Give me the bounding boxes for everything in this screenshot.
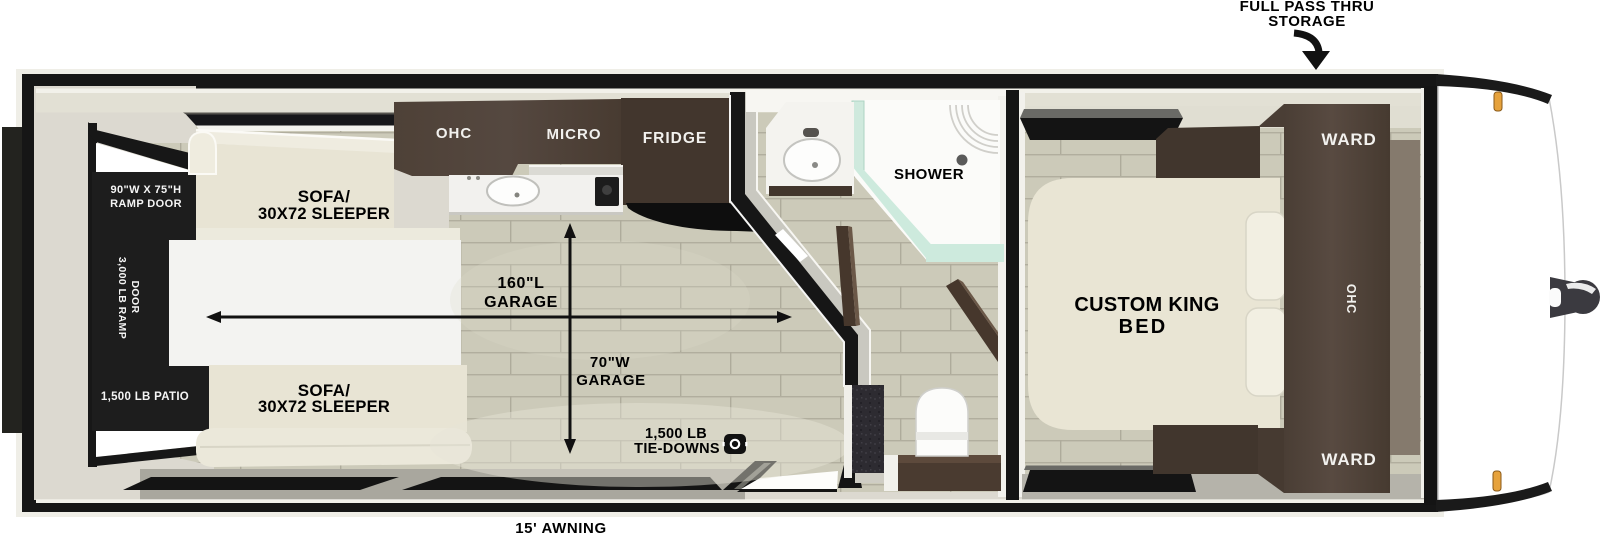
svg-text:WARD: WARD — [1321, 450, 1376, 469]
svg-text:WARD: WARD — [1321, 130, 1376, 149]
svg-text:1,500 LB: 1,500 LB — [645, 426, 707, 442]
svg-text:1,500 LB PATIO: 1,500 LB PATIO — [101, 391, 189, 403]
svg-text:TIE-DOWNS: TIE-DOWNS — [634, 441, 720, 457]
svg-text:MICRO: MICRO — [547, 126, 602, 143]
svg-text:GARAGE: GARAGE — [576, 372, 645, 389]
svg-text:FRIDGE: FRIDGE — [643, 130, 708, 147]
svg-text:15' AWNING: 15' AWNING — [515, 520, 607, 536]
svg-text:OHC: OHC — [436, 125, 472, 142]
svg-text:STORAGE: STORAGE — [1268, 13, 1345, 30]
svg-text:RAMP DOOR: RAMP DOOR — [110, 198, 182, 210]
svg-text:DOOR: DOOR — [129, 280, 141, 313]
svg-text:OHC: OHC — [1344, 284, 1358, 314]
svg-text:CUSTOM KING: CUSTOM KING — [1074, 294, 1219, 316]
svg-text:30X72 SLEEPER: 30X72 SLEEPER — [258, 398, 390, 416]
svg-text:160"L: 160"L — [497, 275, 544, 292]
svg-text:SHOWER: SHOWER — [894, 166, 964, 183]
svg-text:70"W: 70"W — [590, 354, 631, 371]
svg-text:90"W X 75"H: 90"W X 75"H — [110, 184, 181, 196]
svg-text:BED: BED — [1119, 316, 1168, 338]
svg-text:30X72 SLEEPER: 30X72 SLEEPER — [258, 205, 390, 223]
svg-text:GARAGE: GARAGE — [484, 294, 558, 311]
svg-text:SOFA/: SOFA/ — [298, 187, 351, 206]
svg-text:3,000 LB RAMP: 3,000 LB RAMP — [116, 257, 128, 339]
